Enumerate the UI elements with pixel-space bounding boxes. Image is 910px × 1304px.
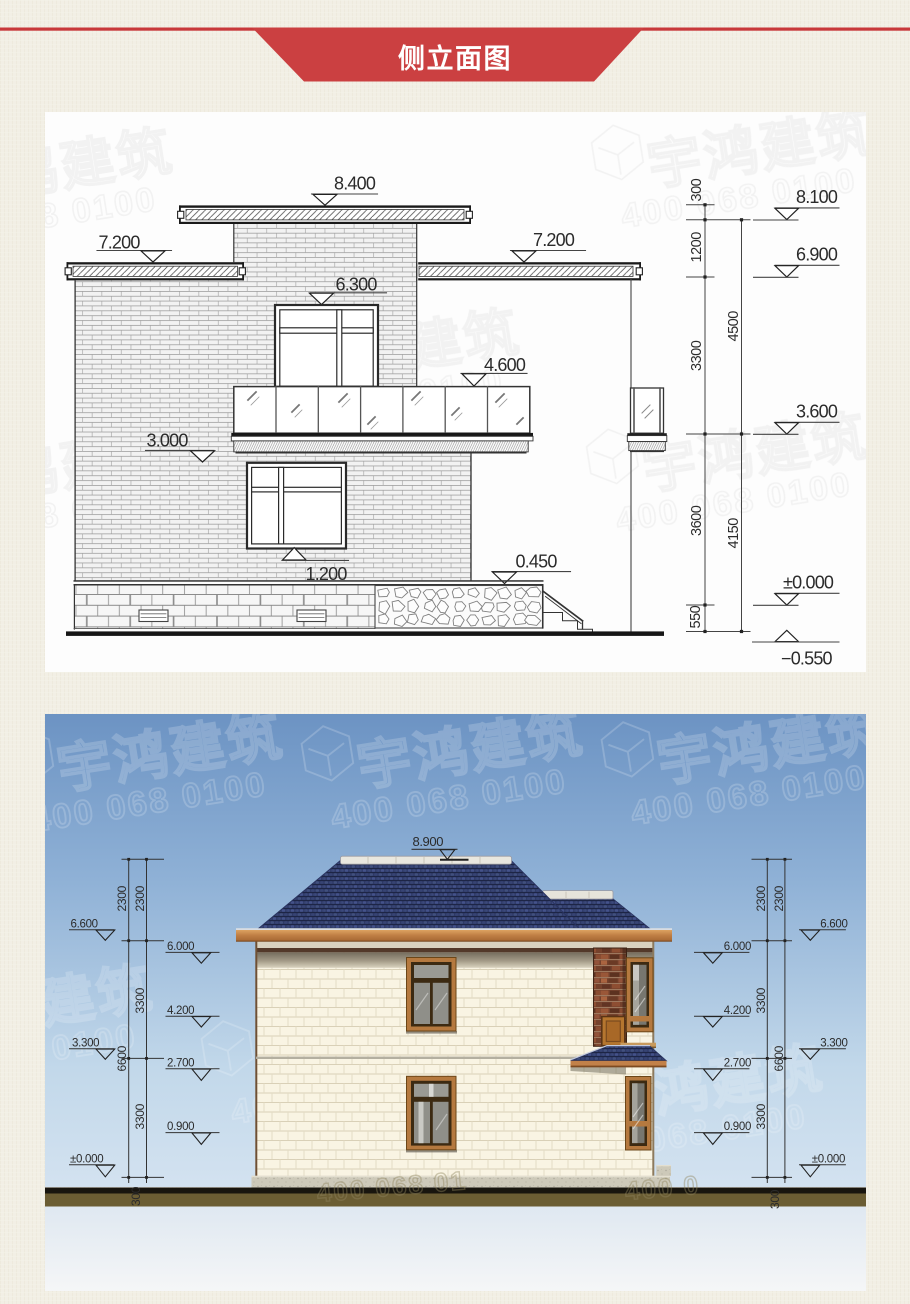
svg-text:7.200: 7.200 [533,230,575,250]
svg-text:8.400: 8.400 [334,174,376,194]
svg-text:侧立面图: 侧立面图 [398,43,512,74]
svg-text:4.200: 4.200 [724,1005,751,1017]
svg-text:2300: 2300 [115,885,129,911]
svg-text:300: 300 [689,178,705,201]
svg-text:300: 300 [129,1186,143,1206]
svg-text:±0.000: ±0.000 [812,1154,845,1166]
svg-text:4150: 4150 [726,518,742,549]
svg-text:3300: 3300 [133,987,147,1013]
svg-text:2300: 2300 [754,885,768,911]
svg-text:8.900: 8.900 [413,834,444,849]
svg-text:±0.000: ±0.000 [70,1154,103,1166]
svg-text:550: 550 [688,605,704,628]
svg-text:3.300: 3.300 [820,1038,847,1050]
svg-text:4.600: 4.600 [484,355,526,375]
svg-text:3.600: 3.600 [796,402,838,422]
svg-text:6.600: 6.600 [820,919,847,931]
svg-text:7.200: 7.200 [99,233,141,253]
svg-text:2300: 2300 [772,885,786,911]
svg-text:4500: 4500 [726,311,742,342]
svg-text:300: 300 [768,1189,782,1209]
svg-text:2.700: 2.700 [167,1057,194,1069]
svg-text:6.000: 6.000 [724,941,751,953]
svg-text:1200: 1200 [689,232,705,263]
svg-text:2300: 2300 [133,885,147,911]
svg-text:6.300: 6.300 [336,275,378,295]
svg-text:3300: 3300 [754,1103,768,1129]
svg-text:3300: 3300 [689,340,705,371]
svg-text:6600: 6600 [115,1045,129,1071]
svg-text:3.300: 3.300 [72,1038,99,1050]
svg-text:0.900: 0.900 [724,1121,751,1133]
svg-text:0.900: 0.900 [167,1121,194,1133]
svg-text:−0.550: −0.550 [781,649,833,669]
svg-text:±0.000: ±0.000 [783,573,834,593]
svg-text:6.600: 6.600 [71,919,98,931]
svg-text:6.000: 6.000 [167,941,194,953]
svg-text:6600: 6600 [772,1045,786,1071]
svg-text:3600: 3600 [689,505,705,536]
svg-text:4.200: 4.200 [167,1005,194,1017]
svg-text:8.100: 8.100 [796,187,838,207]
svg-text:3300: 3300 [754,987,768,1013]
svg-text:0.450: 0.450 [516,552,558,572]
svg-text:3.000: 3.000 [147,431,189,451]
svg-text:6.900: 6.900 [796,245,838,265]
svg-text:3300: 3300 [133,1103,147,1129]
svg-text:2.700: 2.700 [724,1057,751,1069]
